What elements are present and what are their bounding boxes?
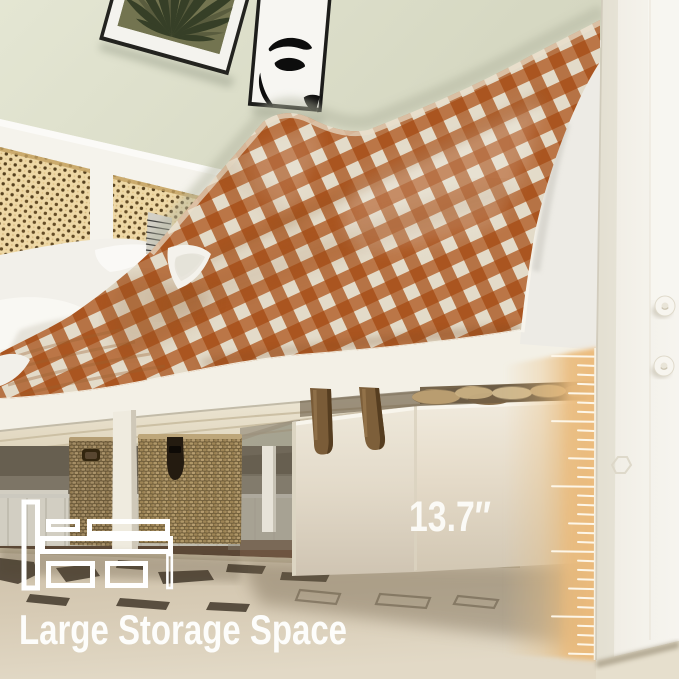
svg-text:Large Storage Space: Large Storage Space: [19, 606, 347, 653]
svg-text:13.7″: 13.7″: [409, 493, 491, 541]
